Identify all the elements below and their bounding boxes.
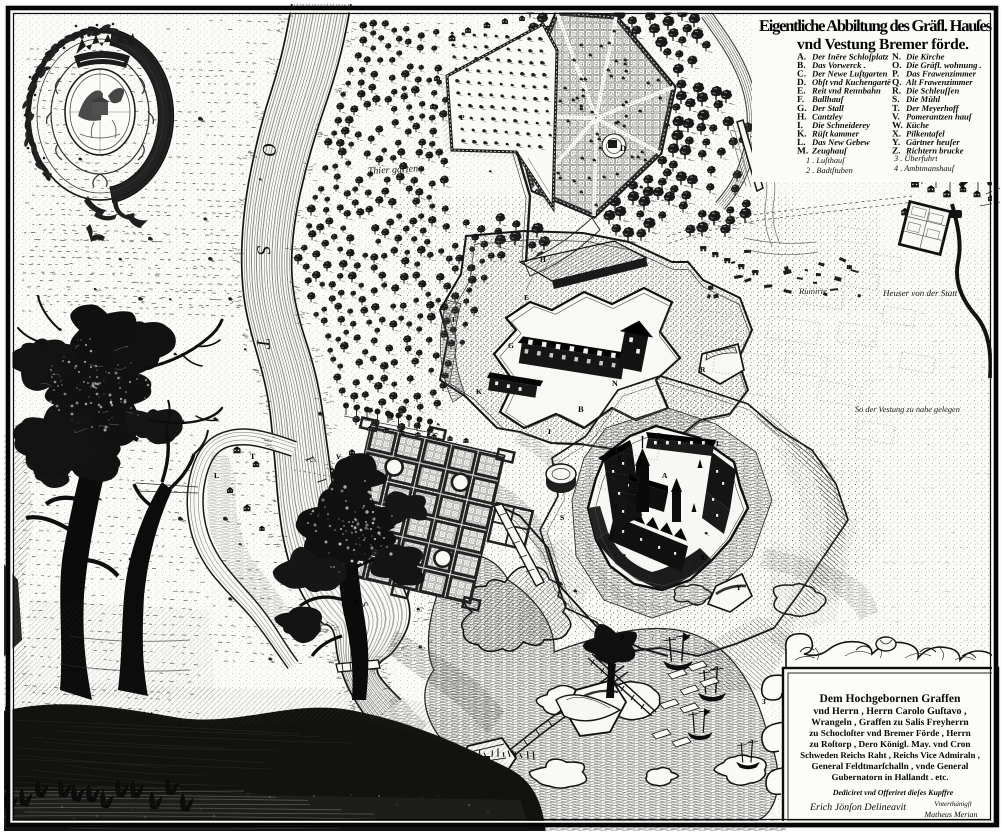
svg-text:D: D (620, 143, 626, 153)
svg-text:Ruinirte: Ruinirte (798, 286, 827, 296)
svg-text:1: 1 (390, 413, 394, 422)
svg-text:2: 2 (354, 597, 358, 606)
svg-text:Zeughauſ: Zeughauſ (811, 146, 848, 156)
svg-text:Heuser von der Statt: Heuser von der Statt (882, 288, 958, 298)
svg-text:P: P (460, 113, 465, 122)
svg-text:zu Roſtorp , Dero Königl. May: zu Roſtorp , Dero Königl. May. vnd Cron (810, 739, 971, 750)
svg-text:Schweden Reichs Raht , Reichs: Schweden Reichs Raht , Reichs Vice Admir… (800, 750, 980, 760)
svg-text:B: B (578, 404, 584, 414)
svg-text:Matheus Merian: Matheus Merian (923, 810, 977, 819)
svg-text:G: G (508, 341, 514, 350)
svg-text:H: H (540, 255, 546, 264)
svg-text:2 . Badtſtuben: 2 . Badtſtuben (806, 166, 853, 175)
svg-text:Eigentliche Abbiltung des Gräf: Eigentliche Abbiltung des Gräfl. Hauſes (759, 16, 993, 35)
svg-text:So der Vestung zu nahe gelegen: So der Vestung zu nahe gelegen (855, 405, 960, 414)
svg-text:1 . Luſthauſ: 1 . Luſthauſ (806, 156, 846, 165)
svg-text:Erich Jönſon Delineavit: Erich Jönſon Delineavit (809, 802, 906, 813)
svg-text:Wrangeln , Graffen zu Salis Fr: Wrangeln , Graffen zu Salis Freyherrn (811, 718, 969, 728)
svg-text:Z: Z (620, 633, 625, 642)
svg-text:R: R (700, 365, 706, 374)
svg-text:K: K (476, 387, 482, 396)
svg-text:Vnterthänigſt: Vnterthänigſt (934, 800, 972, 808)
svg-text:T: T (250, 452, 256, 461)
svg-text:3 . Überfuhrt: 3 . Überfuhrt (893, 154, 938, 163)
svg-text:N: N (612, 379, 618, 388)
svg-text:vnd Herrn , Herrn Carolo Guſta: vnd Herrn , Herrn Carolo Guſtavo , (813, 706, 967, 717)
svg-text:Dediciret vnd Offeriret dieſes: Dediciret vnd Offeriret dieſes Kupffre (832, 788, 954, 797)
svg-text:zu Schocloſter vnd Bremer Förd: zu Schocloſter vnd Bremer Förde , Herrn (809, 728, 971, 738)
svg-text:4 . Ambtmanshauſ: 4 . Ambtmanshauſ (894, 164, 956, 173)
svg-text:vnd Vestung Bremer förde.: vnd Vestung Bremer förde. (797, 36, 969, 53)
svg-text:Gubernatorn in Hallandt . etc.: Gubernatorn in Hallandt . etc. (831, 772, 948, 782)
svg-text:L: L (214, 471, 219, 480)
svg-text:O: O (612, 503, 617, 510)
svg-text:Y: Y (736, 583, 742, 592)
svg-text:I: I (548, 427, 551, 436)
svg-text:X: X (700, 553, 706, 562)
svg-text:Dem Hochgebornen Graffen: Dem Hochgebornen Graffen (819, 692, 961, 705)
svg-text:A: A (662, 471, 668, 480)
svg-text:General Feldtmarſchalln , vnde: General Feldtmarſchalln , vnde General (812, 761, 969, 771)
svg-text:E: E (524, 293, 529, 302)
svg-text:F: F (452, 315, 457, 324)
svg-text:L: L (716, 439, 721, 448)
svg-text:S: S (560, 513, 564, 522)
